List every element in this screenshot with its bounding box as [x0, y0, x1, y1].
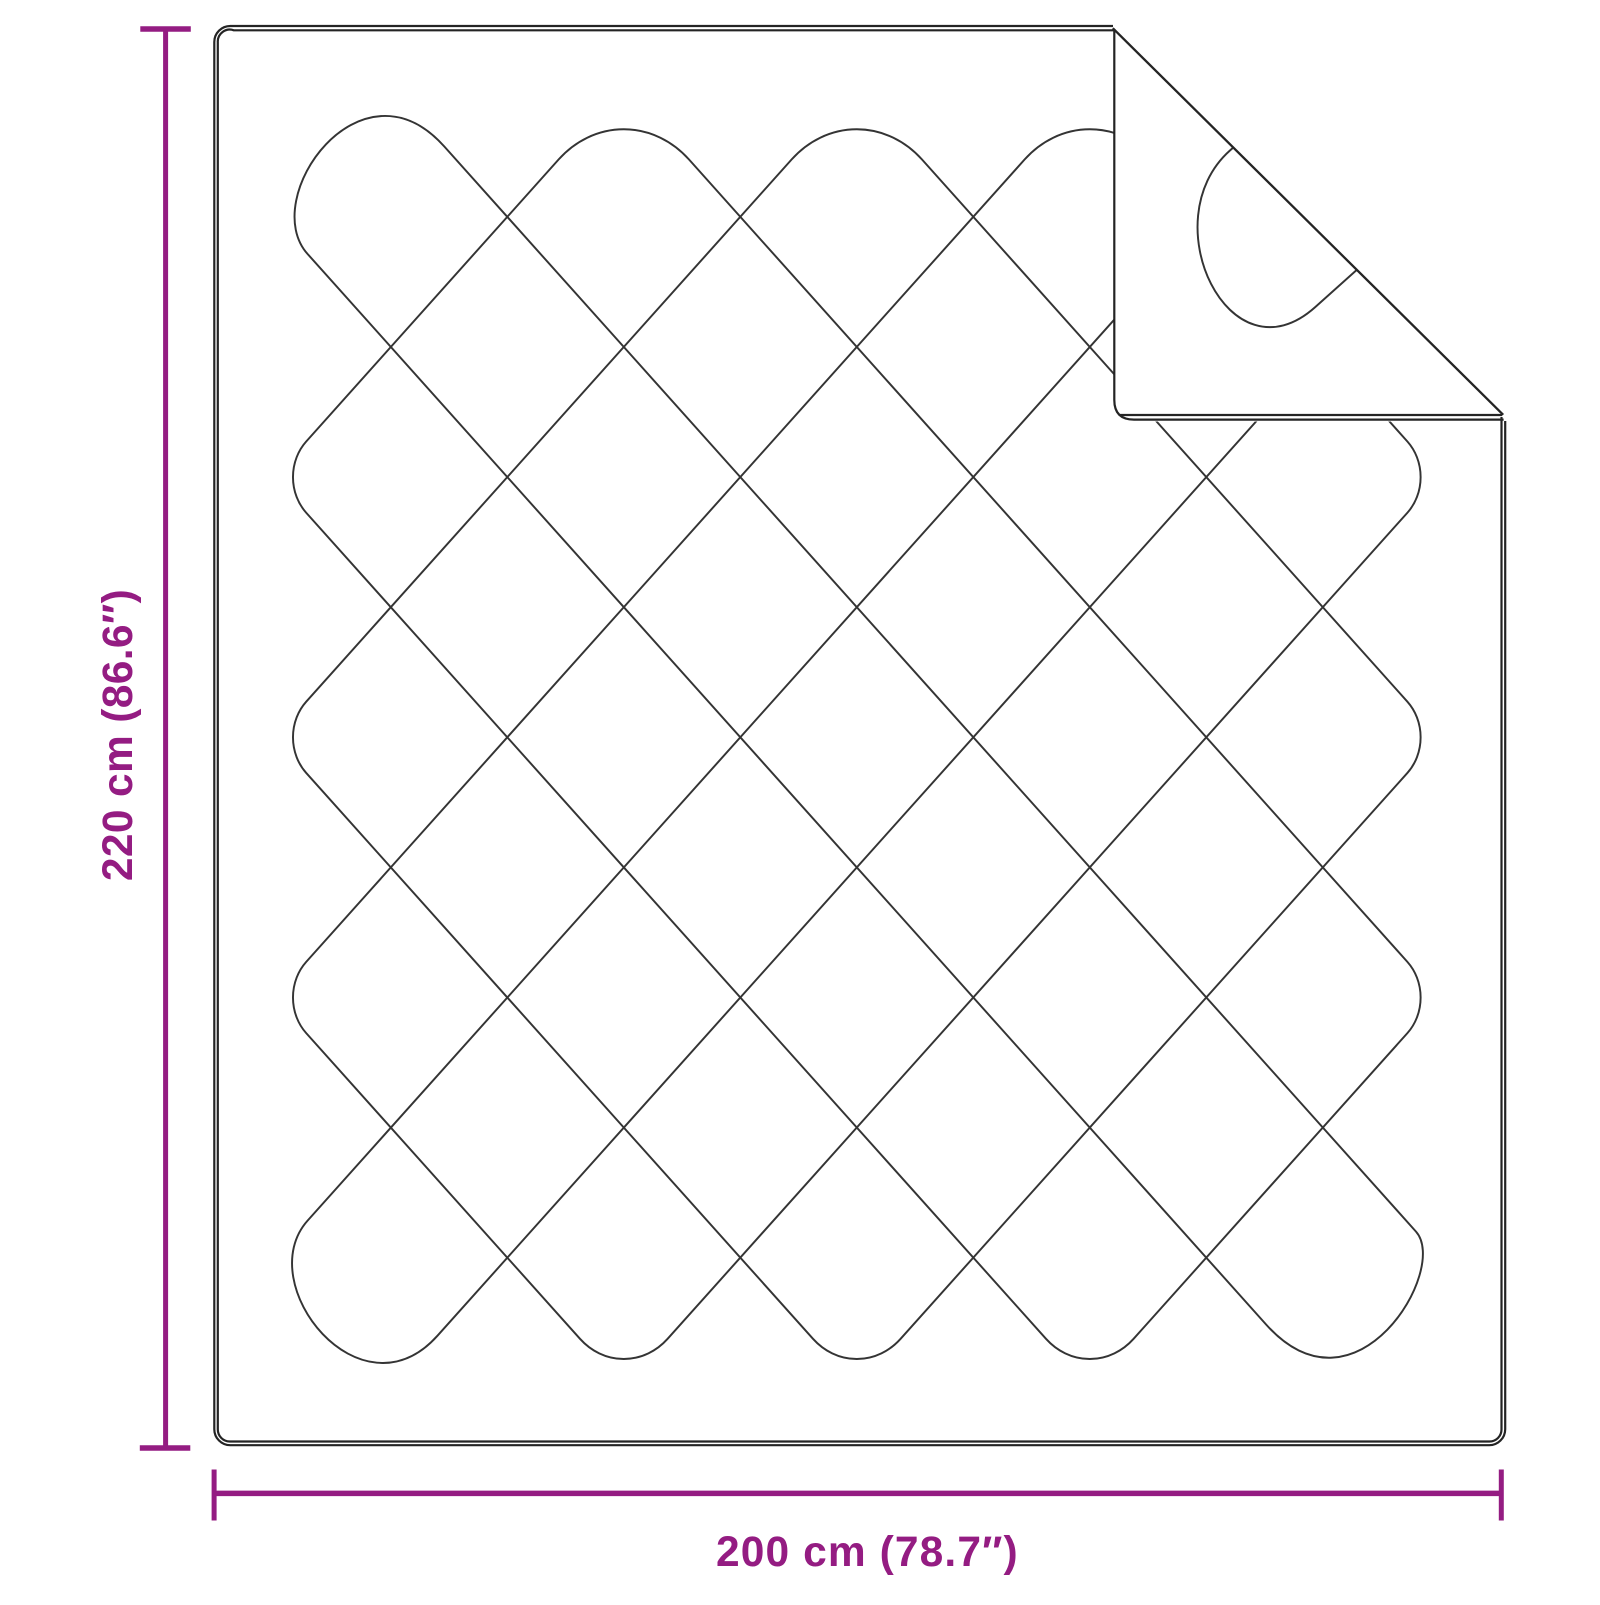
svg-text:220 cm (86.6″): 220 cm (86.6″)	[95, 589, 142, 881]
svg-text:200 cm (78.7″): 200 cm (78.7″)	[716, 1529, 1019, 1576]
